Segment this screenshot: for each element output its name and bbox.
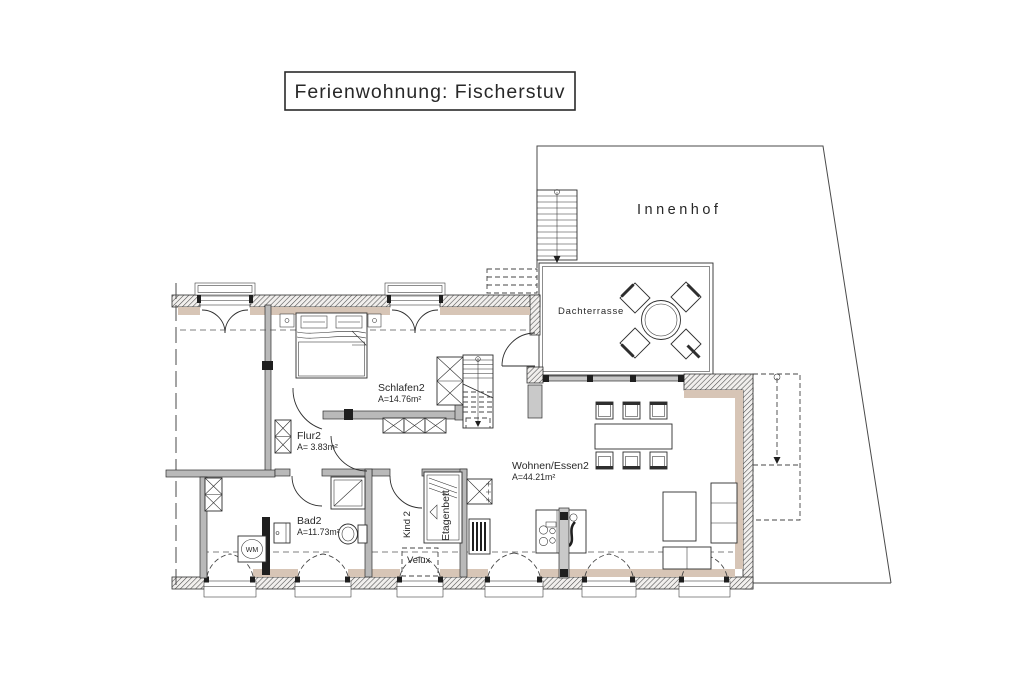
roof-terrace (539, 263, 713, 375)
plan-title: Ferienwohnung: Fischerstuv (295, 81, 566, 103)
room-label-wohnen-essen2: Wohnen/Essen2 (512, 460, 589, 472)
dining-table-icon (595, 424, 672, 449)
room-label-schlafen2: Schlafen2 (378, 382, 425, 394)
washing-machine-label: WM (246, 547, 259, 554)
chimney-block (527, 367, 543, 383)
room-area-wohnen-essen2: A=44.21m² (512, 472, 555, 482)
plan-title-box: Ferienwohnung: Fischerstuv (285, 72, 575, 110)
room-label-bad2: Bad2 (297, 515, 322, 527)
understair-dashed (487, 269, 537, 293)
courtyard-label: Innenhof (637, 202, 721, 218)
coffee-table-icon (663, 492, 696, 541)
floor-plan-page: Ferienwohnung: Fischerstuv Innenhof Dach… (0, 0, 1024, 683)
shower-icon (331, 477, 365, 509)
outdoor-stairs-icon (537, 190, 577, 264)
toilet-icon (339, 524, 368, 544)
room-label-kind2: Kind 2 (402, 511, 413, 538)
radiator-icon (469, 519, 490, 554)
window (385, 283, 445, 305)
duct-shaft (528, 385, 542, 418)
washbasin-icon (274, 523, 290, 543)
velux-label: Velux (407, 555, 430, 566)
bunk-bed-label: Etagenbett (440, 490, 452, 541)
sofa-icon (663, 483, 737, 569)
terrace-label: Dachterrasse (558, 306, 624, 317)
kitchen-icon (536, 508, 586, 578)
room-area-flur2: A= 3.83m² (297, 442, 338, 452)
room-label-flur2: Flur2 (297, 430, 321, 442)
room-area-bad2: A=11.73m² (297, 527, 340, 537)
internal-stairs-icon (463, 355, 493, 428)
double-bed-icon (296, 313, 367, 378)
room-area-schlafen2: A=14.76m² (378, 394, 421, 404)
window (195, 283, 255, 305)
terrace-railing (543, 375, 684, 382)
floor-plan-drawing: Ferienwohnung: Fischerstuv Innenhof Dach… (0, 0, 1024, 683)
lower-level-projection-dashed (753, 374, 800, 520)
